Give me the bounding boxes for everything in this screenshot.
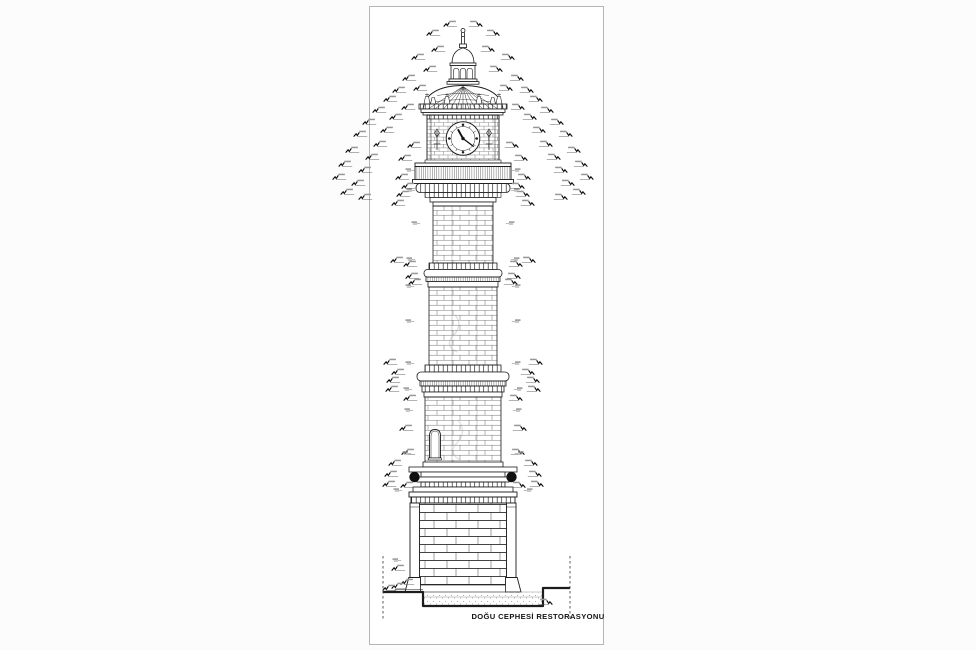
arched-window	[429, 430, 442, 461]
clock-face	[446, 122, 480, 156]
base-pedestal	[405, 492, 521, 592]
drawing-title: DOĞU CEPHESİ RESTORASYONU	[462, 612, 614, 621]
pilaster-right	[507, 503, 517, 585]
corner-sphere-right	[506, 472, 516, 482]
cornice-upper	[424, 263, 502, 287]
annotation-tick	[339, 161, 352, 167]
cornice-lower	[417, 365, 509, 397]
shaft-upper	[433, 206, 493, 263]
annotation-tick	[341, 189, 354, 195]
drawing-sheet: DOĞU CEPHESİ RESTORASYONU	[0, 0, 976, 650]
corner-sphere-left	[409, 472, 419, 482]
clock-story	[425, 115, 501, 163]
annotation-tick	[354, 131, 367, 137]
annotation-tick	[352, 180, 365, 186]
lantern	[447, 63, 479, 84]
shaft-middle	[429, 287, 497, 365]
balcony-band	[413, 163, 514, 184]
foundation-fill	[423, 592, 543, 606]
sphere-course	[409, 462, 517, 492]
annotation-tick	[346, 147, 359, 153]
pilaster-left	[410, 503, 420, 585]
shaft-lower	[425, 397, 501, 466]
elevation-drawing	[0, 0, 976, 650]
annotation-tick	[333, 174, 346, 180]
